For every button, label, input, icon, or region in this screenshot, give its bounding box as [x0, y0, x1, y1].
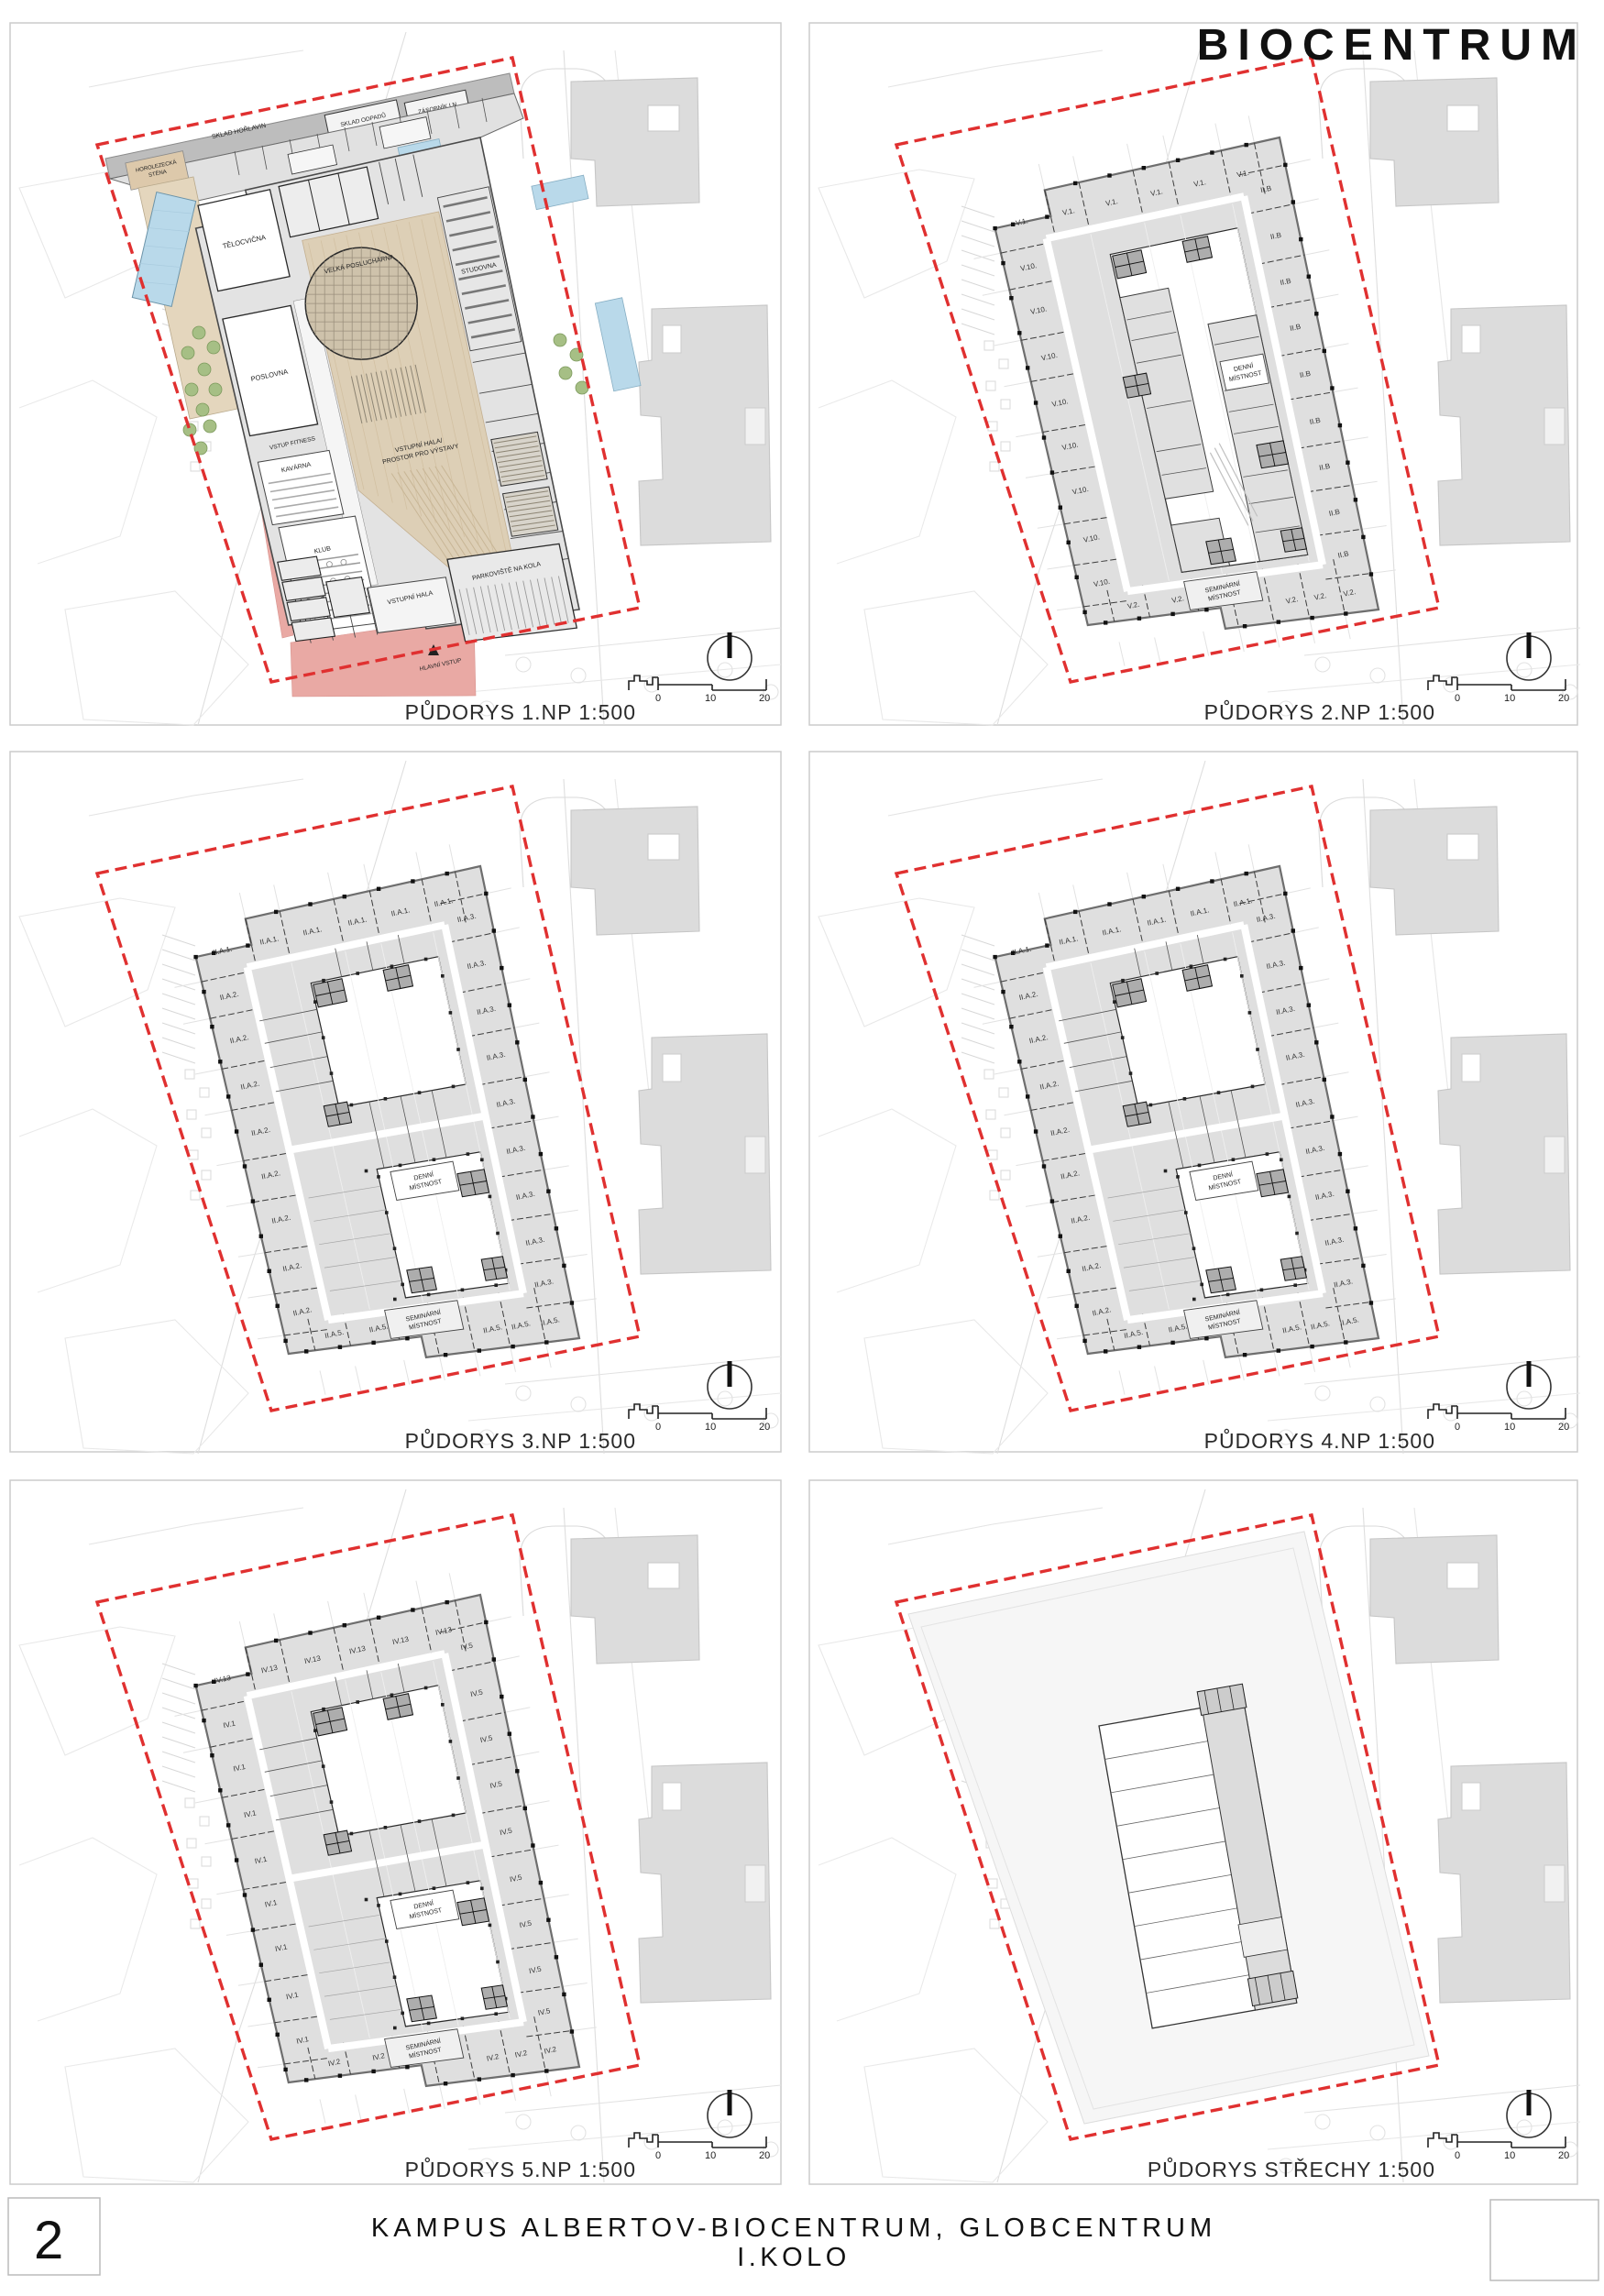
svg-text:KAMPUS ALBERTOV-BIOCENTRUM, GL: KAMPUS ALBERTOV-BIOCENTRUM, GLOBCENTRUM: [371, 2214, 1216, 2243]
svg-text:PŮDORYS 1.NP 1:500: PŮDORYS 1.NP 1:500: [405, 698, 636, 724]
svg-text:PŮDORYS 3.NP 1:500: PŮDORYS 3.NP 1:500: [405, 1427, 636, 1453]
svg-text:PŮDORYS 4.NP 1:500: PŮDORYS 4.NP 1:500: [1204, 1427, 1435, 1453]
svg-text:PŮDORYS STŘECHY 1:500: PŮDORYS STŘECHY 1:500: [1148, 2156, 1435, 2181]
svg-text:PŮDORYS 2.NP 1:500: PŮDORYS 2.NP 1:500: [1204, 698, 1435, 724]
svg-text:BIOCENTRUM: BIOCENTRUM: [1197, 21, 1587, 70]
svg-text:PŮDORYS 5.NP 1:500: PŮDORYS 5.NP 1:500: [405, 2156, 636, 2181]
svg-text:2: 2: [34, 2211, 63, 2270]
svg-text:I.KOLO: I.KOLO: [737, 2243, 851, 2272]
